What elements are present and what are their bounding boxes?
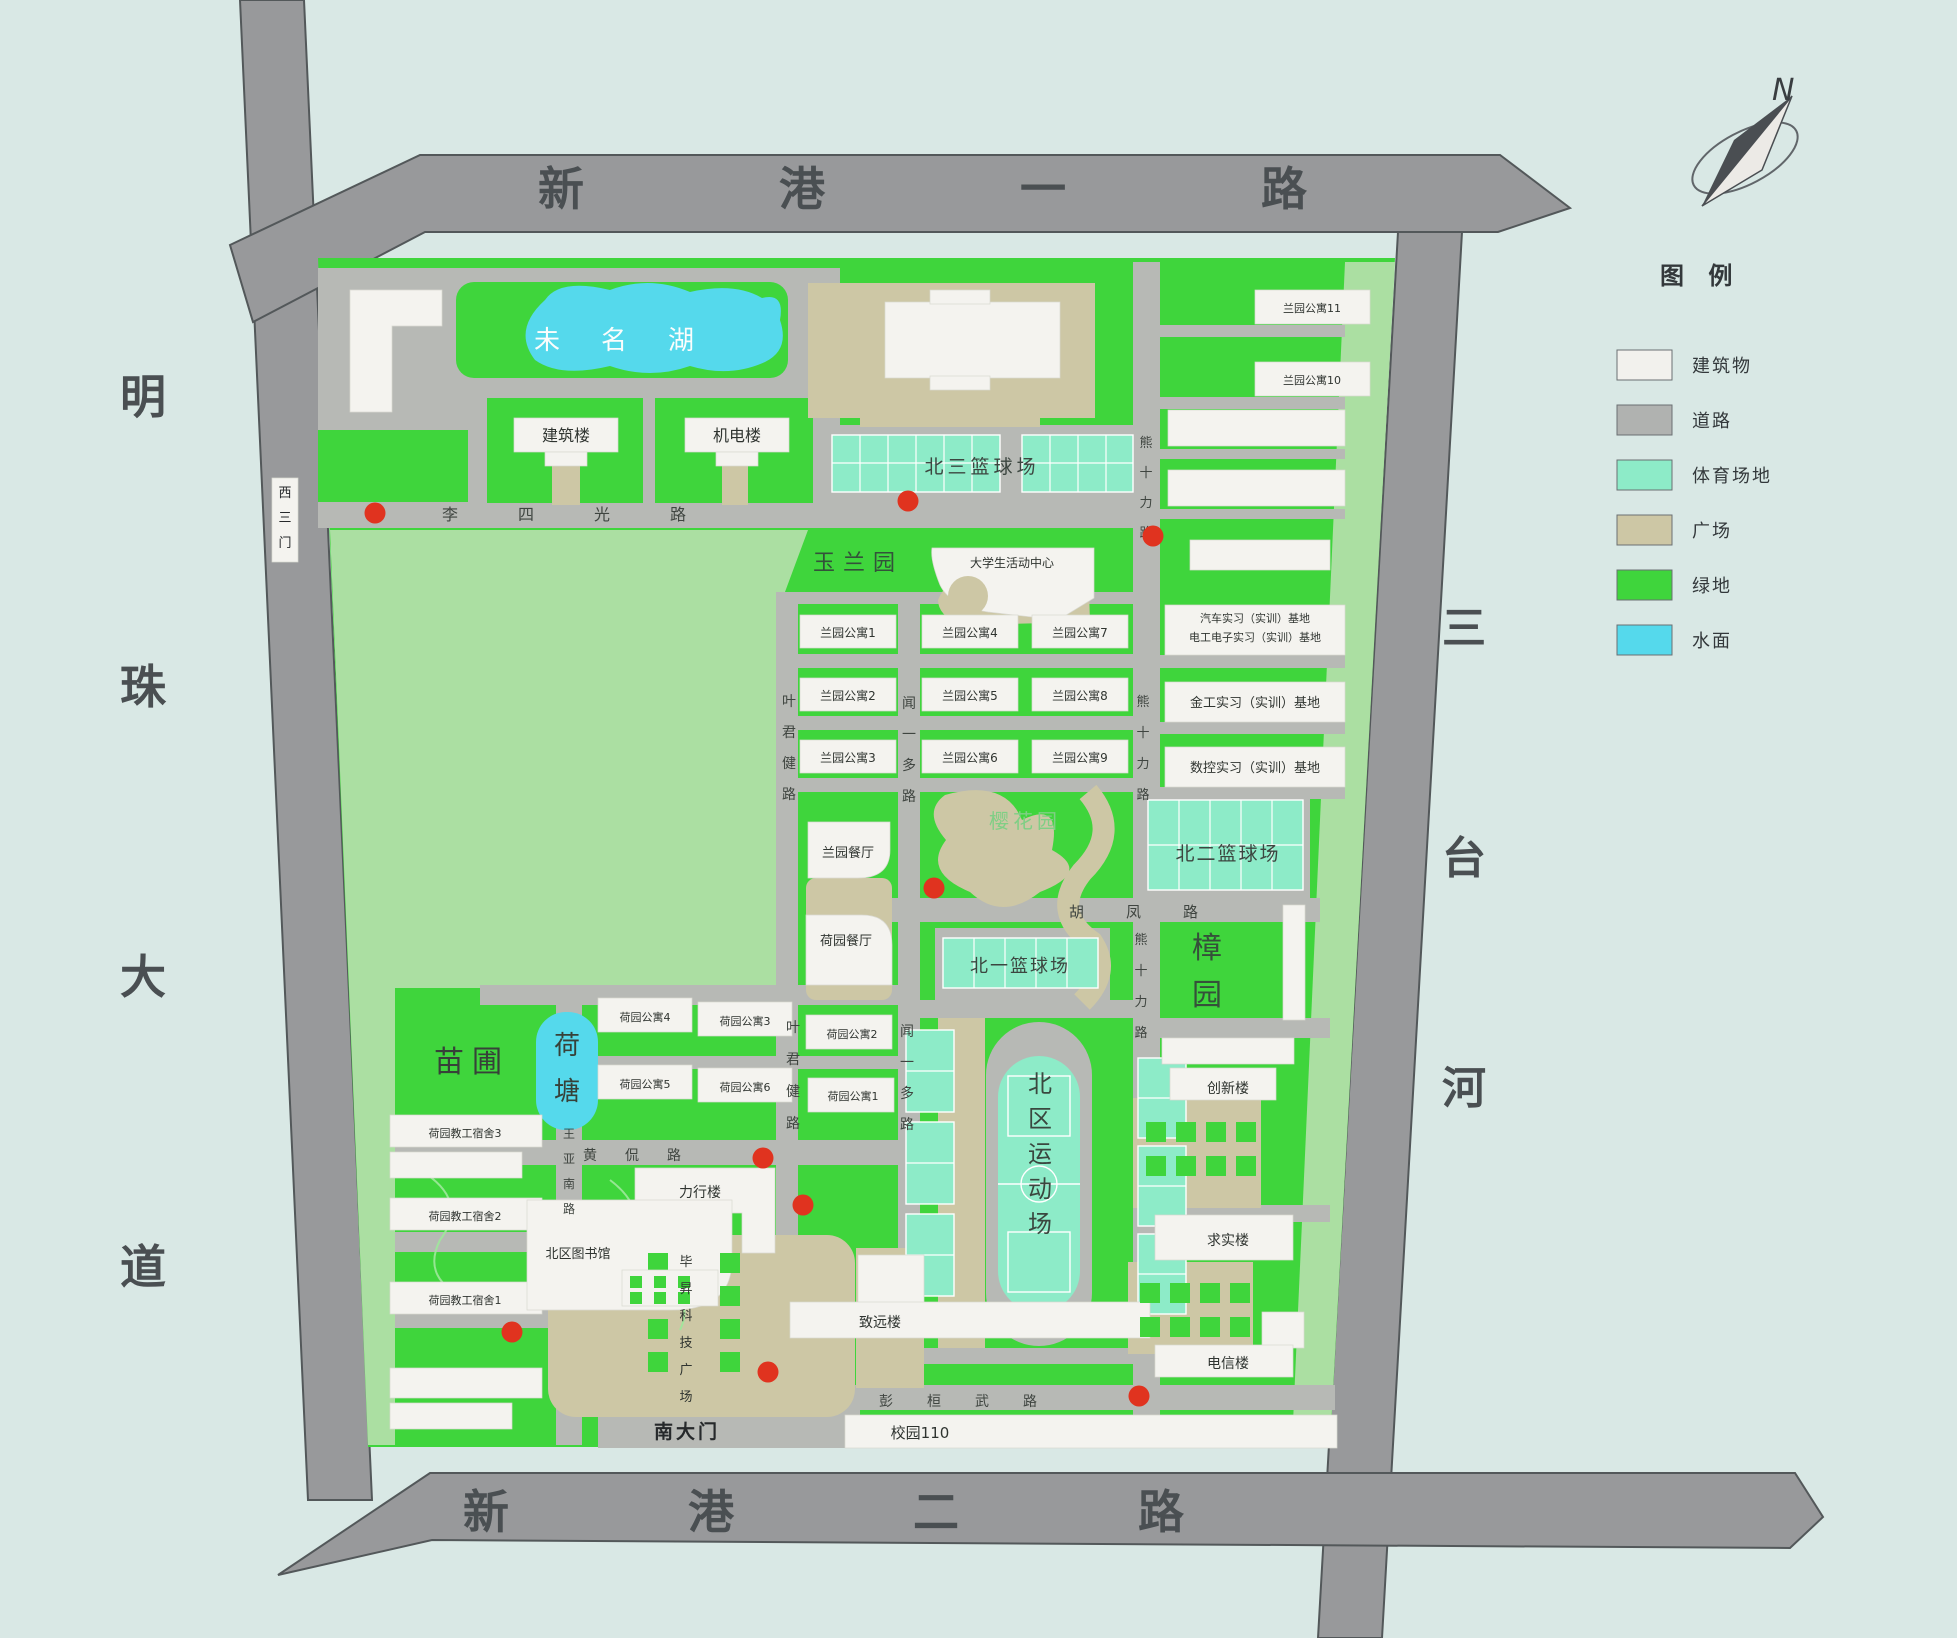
bld-heyuan-canteen: 荷园餐厅 — [820, 933, 872, 949]
bld-staff-dorm1: 荷园教工宿舍1 — [429, 1293, 502, 1307]
road-stub-ne2 — [1160, 397, 1345, 409]
bld-jidianlou: 机电楼 — [713, 426, 761, 445]
bld-lanyuan-apt2: 兰园公寓2 — [820, 688, 876, 703]
legend-label-3: 广场 — [1692, 521, 1732, 542]
hetang-pond — [536, 1012, 598, 1130]
bld-lanyuan-apt10: 兰园公寓10 — [1283, 373, 1341, 387]
campus-map-svg: 新港一路新港二路明珠大道三台河李四光路叶君健路叶君健路闻一多路闻一多路熊十力路熊… — [0, 0, 1957, 1638]
building-auditorium — [885, 290, 1060, 390]
bld-activity-center: 大学生活动中心 — [970, 555, 1054, 570]
bld-jianzhulou: 建筑楼 — [542, 426, 590, 445]
bld-heyuan-apt6: 荷园公寓6 — [720, 1080, 771, 1094]
building-zhiyuan-tower — [858, 1255, 924, 1305]
road-xingang-1: 新港一路 — [538, 162, 1502, 216]
legend-swatch-1 — [1617, 405, 1672, 435]
road-stub-e1 — [1160, 655, 1345, 668]
campus-map: 新港一路新港二路明珠大道三台河李四光路叶君健路叶君健路闻一多路闻一多路熊十力路熊… — [0, 0, 1957, 1638]
building-zhiyuan-annex — [622, 1270, 718, 1306]
road-chuangxin — [1160, 1018, 1330, 1038]
bld-lanyuan-apt7: 兰园公寓7 — [1052, 625, 1108, 640]
bld-lanyuan-apt4: 兰园公寓4 — [942, 625, 998, 640]
bld-chuangxinlou: 创新楼 — [1207, 1081, 1249, 1097]
bld-staff-dorm3: 荷园教工宿舍3 — [429, 1126, 502, 1140]
emergency-point-marker — [1129, 1386, 1150, 1407]
compass-n-label: N — [1772, 73, 1794, 108]
bld-lanyuan-apt9: 兰园公寓9 — [1052, 750, 1108, 765]
garden-miaopu: 苗圃 — [434, 1045, 510, 1080]
emergency-point-marker — [365, 503, 386, 524]
road-grid-1 — [776, 654, 1160, 668]
road-xingang-2: 新港二路 — [463, 1485, 1363, 1539]
northwest-green — [318, 430, 468, 502]
road-grid-2 — [776, 716, 1160, 730]
road-hufeng: 胡凤路 — [1069, 903, 1240, 921]
emergency-point-marker — [758, 1362, 779, 1383]
bld-zhiyuanlou: 致远楼 — [859, 1315, 901, 1331]
bld-auto-training-line1: 汽车实习（实训）基地 — [1200, 611, 1310, 625]
bld-heyuan-apt4: 荷园公寓4 — [620, 1010, 671, 1024]
bld-campus110: 校园110 — [891, 1424, 950, 1442]
road-grid-3 — [776, 778, 1160, 792]
road-lisiguang: 李四光路 — [442, 505, 746, 524]
building-ne-unnamed-2 — [1168, 470, 1345, 506]
garden-yulan: 玉兰园 — [813, 551, 903, 576]
bld-lanyuan-apt5: 兰园公寓5 — [942, 688, 998, 703]
bld-staff-dorm2: 荷园教工宿舍2 — [429, 1209, 502, 1223]
lake-weiming: 未名湖 — [534, 326, 735, 356]
road-stub-ne4 — [1160, 509, 1345, 519]
road-stub-e3 — [1160, 787, 1345, 799]
bld-north-library: 北区图书馆 — [545, 1247, 610, 1262]
emergency-point-marker — [1143, 526, 1164, 547]
legend-swatch-0 — [1617, 350, 1672, 380]
building-heyuan-canteen — [806, 915, 892, 985]
bld-qiushilou: 求实楼 — [1207, 1233, 1249, 1249]
bld-heyuan-apt2: 荷园公寓2 — [827, 1027, 878, 1041]
building-dianxin-tab — [1262, 1312, 1304, 1348]
north-plaza-stem — [860, 395, 1040, 427]
bld-lixinglou: 力行楼 — [679, 1185, 721, 1201]
legend-swatch-4 — [1617, 570, 1672, 600]
building-zhiyuanlou — [790, 1302, 1150, 1338]
road-stadium-top — [918, 1000, 1133, 1018]
legend-title: 图 例 — [1660, 262, 1740, 290]
legend-label-1: 道路 — [1692, 411, 1732, 432]
legend-swatch-3 — [1617, 515, 1672, 545]
bld-auto-training-line2: 电工电子实习（实训）基地 — [1189, 630, 1321, 644]
bld-heyuan-apt5: 荷园公寓5 — [620, 1077, 671, 1091]
bld-heyuan-apt3: 荷园公寓3 — [720, 1014, 771, 1028]
road-stadium-bottom — [900, 1348, 1133, 1364]
building-jidianlou-stem — [716, 452, 758, 466]
legend-swatch-5 — [1617, 625, 1672, 655]
bld-lanyuan-canteen: 兰园餐厅 — [822, 845, 874, 861]
bld-lanyuan-apt1: 兰园公寓1 — [820, 625, 876, 640]
road-penghuanwu: 彭桓武路 — [879, 1394, 1071, 1410]
court-north1: 北一篮球场 — [970, 956, 1070, 977]
legend-label-0: 建筑物 — [1692, 356, 1752, 377]
emergency-point-marker — [753, 1148, 774, 1169]
road-stub-e2 — [1160, 722, 1345, 734]
stadium-north: 北区运动场 — [1028, 1070, 1052, 1238]
gate-west-3: 西三门 — [278, 486, 291, 551]
bld-lanyuan-apt6: 兰园公寓6 — [942, 750, 998, 765]
legend-label-4: 绿地 — [1692, 576, 1732, 597]
emergency-point-marker — [502, 1322, 523, 1343]
building-ne-unnamed-3 — [1190, 540, 1330, 570]
road-stub-ne1 — [1160, 325, 1345, 337]
bld-dianxinlou: 电信楼 — [1207, 1356, 1249, 1372]
garden-yinghua: 樱花园 — [989, 809, 1061, 833]
emergency-point-marker — [898, 491, 919, 512]
legend-swatch-2 — [1617, 460, 1672, 490]
bld-lanyuan-apt11: 兰园公寓11 — [1283, 301, 1341, 315]
emergency-point-marker — [924, 878, 945, 899]
building-ne-unnamed-1 — [1168, 410, 1345, 446]
emergency-point-marker — [793, 1195, 814, 1216]
building-east-bar — [1283, 905, 1305, 1020]
road-huangkan: 黄侃路 — [583, 1147, 709, 1164]
bld-heyuan-apt1: 荷园公寓1 — [828, 1089, 879, 1103]
court-north3: 北三篮球场 — [924, 456, 1039, 478]
legend-label-2: 体育场地 — [1692, 466, 1772, 487]
bld-lanyuan-apt3: 兰园公寓3 — [820, 750, 876, 765]
bld-cnc-training: 数控实习（实训）基地 — [1190, 761, 1320, 776]
bld-metalwork-training: 金工实习（实训）基地 — [1190, 695, 1320, 711]
court-north2: 北二篮球场 — [1175, 843, 1280, 865]
gate-south: 南大门 — [654, 1420, 720, 1443]
building-jianzhulou-stem — [545, 452, 587, 466]
road-stub-ne3 — [1160, 449, 1345, 459]
legend-label-5: 水面 — [1692, 631, 1732, 652]
bld-lanyuan-apt8: 兰园公寓8 — [1052, 688, 1108, 703]
